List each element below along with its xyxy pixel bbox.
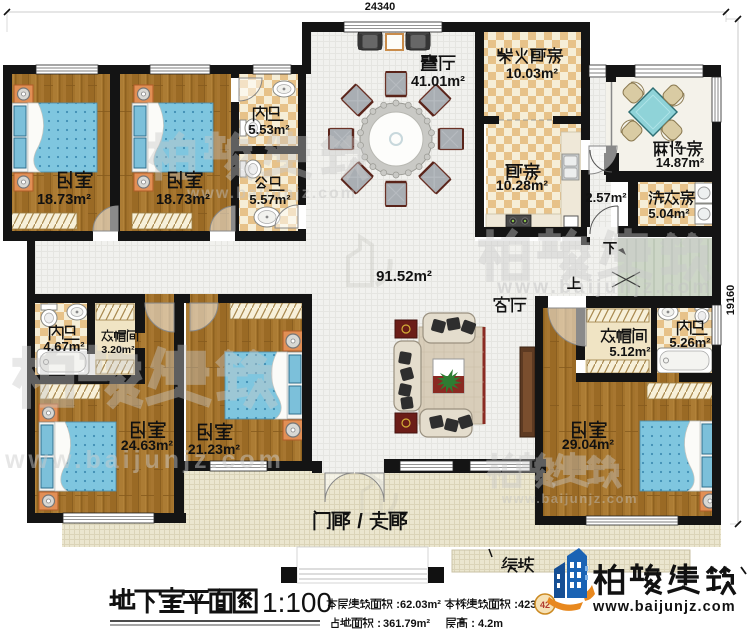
svg-text:4.2m: 4.2m (478, 618, 503, 629)
svg-text:24.63m²: 24.63m² (121, 437, 173, 453)
svg-text:/: / (357, 511, 363, 533)
svg-text:361.79m²: 361.79m² (383, 618, 430, 629)
svg-text:www.baijunjz.com: www.baijunjz.com (592, 599, 736, 615)
svg-text::: : (471, 617, 475, 629)
svg-text:10.03m²: 10.03m² (506, 65, 558, 81)
svg-text:423: 423 (518, 599, 536, 611)
svg-text:91.52m²: 91.52m² (376, 268, 432, 285)
svg-text:18.73m²: 18.73m² (156, 192, 210, 208)
svg-text:18.73m²: 18.73m² (37, 192, 91, 208)
svg-text:19160: 19160 (725, 285, 737, 316)
svg-text:www.baijunjz.com: www.baijunjz.com (496, 277, 712, 298)
svg-text:5.12m²: 5.12m² (609, 344, 651, 359)
svg-text::: : (377, 617, 381, 629)
svg-text:2.57m²: 2.57m² (585, 190, 627, 205)
svg-text:24340: 24340 (365, 1, 396, 13)
svg-text:10.28m²: 10.28m² (496, 177, 548, 193)
svg-text:4.67m²: 4.67m² (43, 339, 85, 354)
svg-text:5.57m²: 5.57m² (249, 192, 291, 207)
svg-text:www.baijunjz.com: www.baijunjz.com (501, 491, 638, 506)
svg-text:21.23m²: 21.23m² (188, 441, 240, 457)
svg-text:5.04m²: 5.04m² (648, 206, 690, 221)
svg-text:14.87m²: 14.87m² (656, 155, 705, 170)
svg-text:5.26m²: 5.26m² (669, 335, 711, 350)
svg-text:41.01m²: 41.01m² (411, 74, 465, 90)
svg-text:3.20m²: 3.20m² (101, 344, 135, 356)
svg-text:62.03m²: 62.03m² (400, 599, 441, 611)
svg-text:29.04m²: 29.04m² (562, 436, 614, 452)
svg-text:5.53m²: 5.53m² (248, 122, 290, 137)
svg-text:1:100: 1:100 (262, 587, 332, 618)
